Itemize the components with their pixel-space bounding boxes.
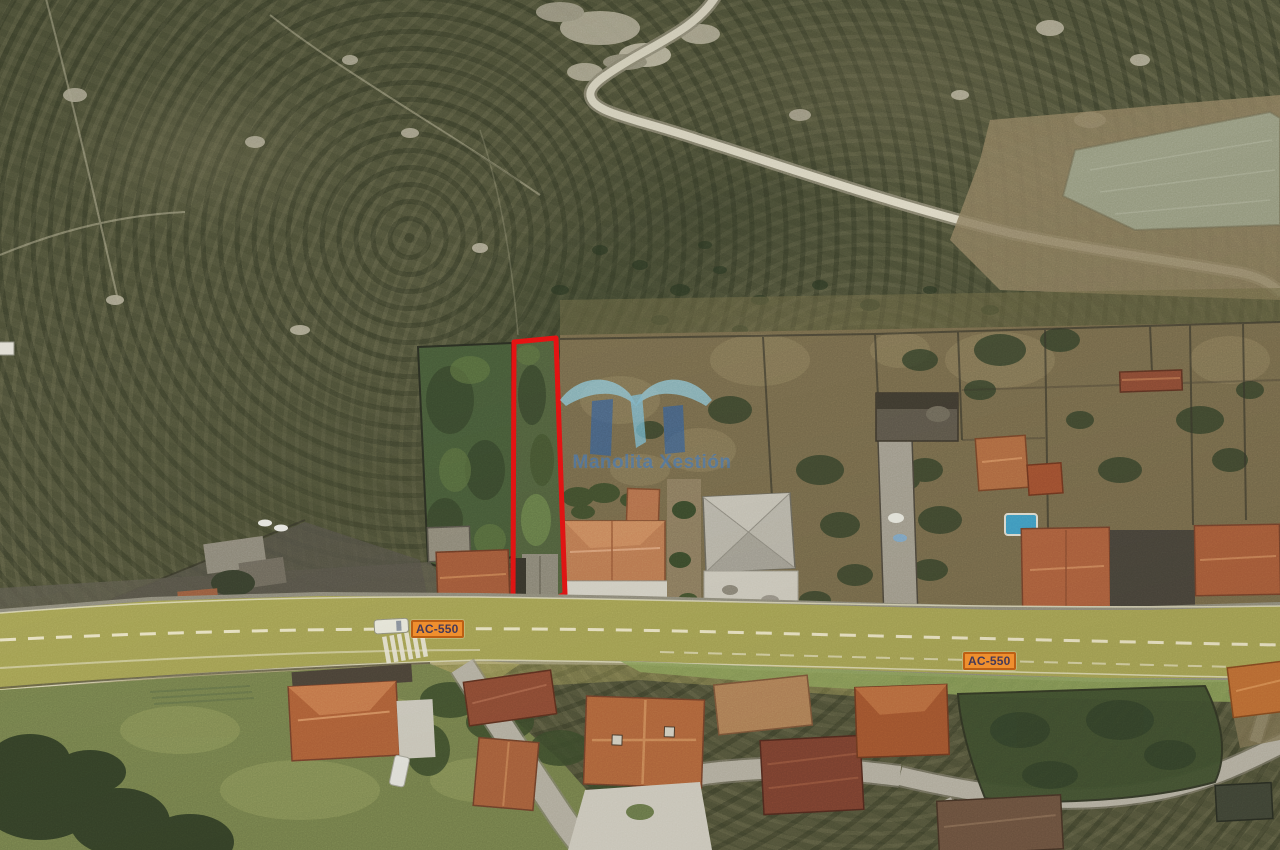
dark-courtyard bbox=[1110, 530, 1195, 612]
aerial-scene-graphics bbox=[0, 0, 1280, 850]
hillside-trails bbox=[0, 0, 540, 382]
dark-building bbox=[876, 393, 958, 441]
house-wing-roof bbox=[626, 488, 659, 524]
driveway bbox=[878, 438, 918, 620]
long-shed-roof bbox=[1120, 370, 1183, 392]
white-van bbox=[374, 618, 409, 634]
main-house-roof bbox=[584, 696, 705, 788]
house-roof bbox=[1227, 660, 1280, 717]
road-label-ac550: AC-550 bbox=[411, 620, 464, 638]
house-roof bbox=[288, 681, 400, 761]
house-roof bbox=[760, 735, 864, 814]
dark-shed-roof bbox=[1215, 783, 1273, 822]
road-label-ac550: AC-550 bbox=[963, 652, 1016, 670]
flat-field bbox=[950, 95, 1280, 300]
red-parcel bbox=[513, 338, 565, 606]
pale-hip-roof-building bbox=[703, 493, 795, 572]
house-roof bbox=[714, 675, 813, 735]
left-ruins bbox=[0, 342, 455, 622]
aerial-photo: AC-550 AC-550 Manolita Xestión bbox=[0, 0, 1280, 850]
terracotta-house-roof bbox=[564, 521, 665, 581]
house-roof bbox=[937, 795, 1064, 850]
lower-area bbox=[0, 660, 1280, 850]
